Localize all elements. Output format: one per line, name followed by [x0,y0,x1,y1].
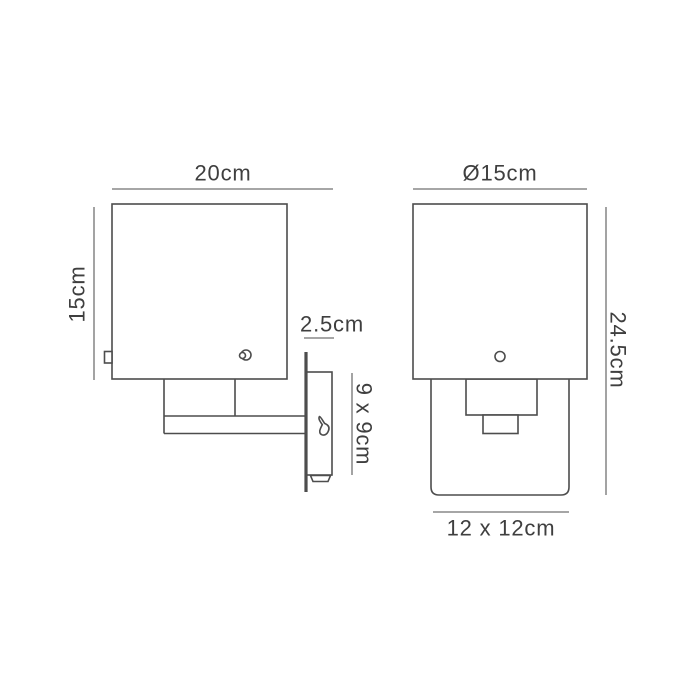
shade-clip [105,352,113,364]
dim-label-shade-width: Ø15cm [463,161,538,186]
dim-label-projection-width: 20cm [195,161,252,186]
front-bracket-upper [466,379,537,415]
dim-label-overall-height: 24.5cm [606,312,631,389]
mounting-bracket-side [306,372,332,475]
dim-label-bracket-size: 9 x 9cm [352,383,377,466]
dim-label-shade-height: 15cm [65,266,90,323]
dim-label-backplate-size: 12 x 12cm [447,516,556,541]
bracket-foot [311,476,331,482]
dim-label-backplate-depth: 2.5cm [300,312,364,337]
front-bracket-lower [483,415,518,434]
front-switch-knob-icon [495,352,505,362]
front-view: Ø15cm 24.5cm 12 x 12cm [413,161,631,541]
wall-light-dimension-diagram: 20cm 15cm 2.5cm 9 x 9cm [0,0,700,700]
side-shade [112,204,287,379]
lamp-arm [164,379,306,434]
side-view: 20cm 15cm 2.5cm 9 x 9cm [65,161,377,493]
